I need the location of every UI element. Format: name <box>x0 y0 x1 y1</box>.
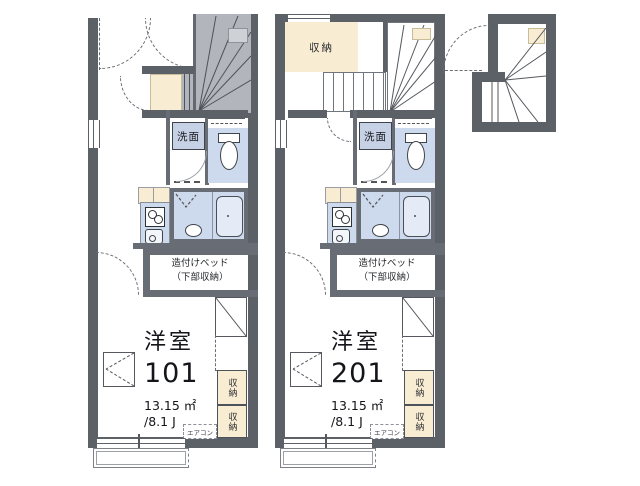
bathroom <box>357 188 435 243</box>
door-leaf <box>445 70 482 71</box>
wall <box>142 66 195 74</box>
kitchen <box>140 202 170 245</box>
staircase <box>193 14 251 113</box>
wall <box>330 248 445 255</box>
room-area: 13.15 ㎡ <box>144 395 248 414</box>
built-in-bed-label: 造付けベッド （下部収納） <box>152 257 248 285</box>
room-label-block: 洋室 201 13.15 ㎡ /8.1 J <box>331 324 435 429</box>
stair-detail-diagram <box>443 14 558 136</box>
unit-101-plan: 洗面 <box>88 14 258 470</box>
room-door-arc <box>96 252 139 295</box>
washbasin-label: 洗面 <box>359 122 392 150</box>
stove-icon <box>332 207 352 227</box>
bed-label-line2: （下部収納） <box>339 271 435 285</box>
bath-fold-door <box>362 193 384 209</box>
bathroom <box>170 188 248 243</box>
staircase <box>387 22 435 113</box>
built-in-bed-label: 造付けベッド （下部収納） <box>339 257 435 285</box>
bathtub-icon <box>403 196 430 237</box>
washbasin-label: 洗面 <box>172 122 205 150</box>
wall <box>546 14 556 132</box>
wall <box>143 248 258 255</box>
floorplan-page: 洗面 <box>0 0 640 486</box>
room-door-arc <box>283 252 326 295</box>
wall <box>288 110 327 118</box>
door-arc <box>443 25 489 73</box>
wall <box>166 110 170 185</box>
bed-label-line1: 造付けベッド <box>339 257 435 271</box>
kitchen <box>327 202 357 245</box>
wall <box>142 110 248 118</box>
drain-icon <box>372 224 389 237</box>
hall-door-arc <box>327 118 351 142</box>
room-tatami: /8.1 J <box>331 414 435 429</box>
upper-closet: 収納 <box>285 22 358 72</box>
window <box>88 120 100 148</box>
room-label-block: 洋室 101 13.15 ㎡ /8.1 J <box>144 324 248 429</box>
bathtub-icon <box>216 196 243 237</box>
stair-lines <box>482 24 546 122</box>
room-number: 201 <box>331 358 435 389</box>
bed-label-line1: 造付けベッド <box>152 257 248 271</box>
sink-icon <box>145 229 163 244</box>
wall <box>350 110 435 118</box>
washbasin-door-arc <box>363 151 394 182</box>
window <box>275 120 287 148</box>
stair-landing <box>228 28 248 43</box>
window-shutter-symbol <box>290 352 322 387</box>
washbasin-door-arc <box>176 151 207 182</box>
stove-icon <box>145 207 165 227</box>
wall <box>330 290 445 297</box>
room-number: 101 <box>144 358 248 389</box>
entry-door-arc <box>100 18 151 69</box>
entry-door-arc <box>145 18 196 69</box>
window-shutter-symbol <box>103 352 135 387</box>
hall-closet <box>150 74 182 112</box>
room-tatami: /8.1 J <box>144 414 248 429</box>
stair-corner-shelf <box>412 28 431 40</box>
room-area: 13.15 ㎡ <box>331 395 435 414</box>
room-type-label: 洋室 <box>144 324 248 356</box>
sink-icon <box>332 229 350 244</box>
toilet-room <box>208 128 248 183</box>
room-type-label: 洋室 <box>331 324 435 356</box>
hall-door-arc <box>120 76 149 111</box>
wall <box>472 72 482 132</box>
wall <box>143 290 258 297</box>
bath-fold-door <box>175 193 197 209</box>
drain-icon <box>185 224 202 237</box>
wall <box>353 110 357 185</box>
unit-201-plan: 収納 洗面 <box>275 14 445 470</box>
wall <box>88 18 98 448</box>
entry-door-leaf <box>99 18 100 70</box>
toilet-bowl-icon <box>220 141 238 170</box>
toilet-room <box>395 128 435 183</box>
stair-treads <box>323 72 386 112</box>
toilet-bowl-icon <box>407 141 425 170</box>
bed-label-line2: （下部収納） <box>152 271 248 285</box>
balcony <box>280 448 376 468</box>
balcony <box>93 448 189 468</box>
wall <box>275 14 285 448</box>
wall <box>472 122 556 132</box>
